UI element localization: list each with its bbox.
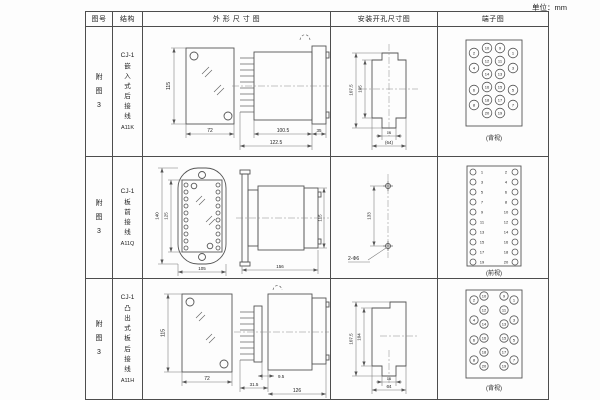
structure-row1: CJ-1 嵌入式后接线 A11K <box>121 52 135 131</box>
terminal-grid: 2 4 6 8 10 12 14 16 18 20 9 11 13 15 17 … <box>469 43 518 118</box>
fig-no-row2: 附图3 <box>96 197 103 239</box>
svg-text:14: 14 <box>485 71 490 76</box>
svg-text:12: 12 <box>504 219 509 224</box>
svg-text:9: 9 <box>481 209 484 214</box>
dim-107-5: 107.5 <box>348 333 353 345</box>
dim-16: 16 <box>386 130 391 135</box>
svg-text:7: 7 <box>513 358 516 363</box>
svg-text:14: 14 <box>504 229 509 234</box>
dim-140: 140 <box>154 211 159 219</box>
structure-desc-row3: 凸出式板后接线 <box>124 304 131 374</box>
fig-no-cell-row3: 附图3 <box>86 279 113 399</box>
mounting-drawing-a11q: 133 2-Φ6 <box>332 158 437 278</box>
header-mounting: 安装开孔尺寸图 <box>331 12 438 27</box>
hole-callout: 2-Φ6 <box>348 256 359 262</box>
outline-drawing-a11k: 115 72 100.5 35 122.5 <box>144 28 330 156</box>
svg-text:19: 19 <box>480 259 485 264</box>
header-terminal: 端子图 <box>438 12 548 27</box>
svg-text:18: 18 <box>485 97 490 102</box>
fig-no-row3: 附图3 <box>96 318 103 360</box>
svg-text:7: 7 <box>512 102 515 107</box>
svg-text:6: 6 <box>473 338 476 343</box>
structure-row2: CJ-1 板前接线 A11Q <box>121 188 135 247</box>
svg-text:16: 16 <box>485 84 490 89</box>
fig-no-cell-row2: 附图3 <box>86 157 113 279</box>
svg-text:1: 1 <box>481 169 484 174</box>
svg-text:19: 19 <box>502 364 507 369</box>
svg-text:5: 5 <box>481 189 484 194</box>
front-view: 115 72 <box>160 294 232 386</box>
svg-text:3: 3 <box>513 318 516 323</box>
terminal-grid: 2 4 6 8 10 12 14 16 18 20 9 11 13 15 17 … <box>470 292 518 370</box>
view-label-row1: (背视) <box>486 134 502 142</box>
structure-cell-row2: CJ-1 板前接线 A11Q <box>113 157 143 279</box>
svg-text:20: 20 <box>485 110 490 115</box>
model-row2: CJ-1 <box>121 188 135 195</box>
dim-104: 104 <box>356 333 361 341</box>
structure-cell-row1: CJ-1 嵌入式后接线 A11K <box>113 27 143 157</box>
svg-text:8: 8 <box>473 358 476 363</box>
structure-desc-row1: 嵌入式后接线 <box>124 62 131 122</box>
structure-cell-row3: CJ-1 凸出式板后接线 A11H <box>113 279 143 399</box>
svg-text:2: 2 <box>505 169 508 174</box>
svg-text:3: 3 <box>512 65 515 70</box>
dim-115: 115 <box>166 81 172 89</box>
svg-text:7: 7 <box>481 199 484 204</box>
svg-text:17: 17 <box>480 249 485 254</box>
svg-text:4: 4 <box>473 318 476 323</box>
svg-text:5: 5 <box>512 87 515 92</box>
svg-text:18: 18 <box>482 350 487 355</box>
outline-drawing-a11q: 140 125 105 <box>144 158 330 278</box>
header-fig-no: 图号 <box>86 12 113 27</box>
fig-no-cell-row1: 附图3 <box>86 27 113 157</box>
header-structure: 结构 <box>113 12 143 27</box>
svg-text:10: 10 <box>485 45 490 50</box>
terminal-diagram-a11h: 2 4 6 8 10 12 14 16 18 20 9 11 13 15 17 … <box>439 280 547 398</box>
mounting-drawing-a11h: 107.5 104 16 64 <box>332 280 437 398</box>
svg-text:9: 9 <box>503 294 506 299</box>
svg-text:12: 12 <box>485 58 490 63</box>
terminal-diagram-a11q: 12 34 56 78 910 1112 1314 1516 1718 1920… <box>439 158 547 278</box>
side-view: 100.5 35 122.5 <box>232 34 329 149</box>
dim-133: 133 <box>366 211 371 219</box>
svg-text:13: 13 <box>502 322 507 327</box>
dim-72: 72 <box>207 128 213 134</box>
svg-text:16: 16 <box>504 239 509 244</box>
dim-31-5: 31.5 <box>249 382 258 387</box>
svg-text:11: 11 <box>498 58 503 63</box>
svg-text:15: 15 <box>498 84 503 89</box>
svg-text:17: 17 <box>502 350 507 355</box>
svg-text:14: 14 <box>482 322 487 327</box>
dim-100-5: 100.5 <box>276 128 289 134</box>
terminal-grid: 12 34 56 78 910 1112 1314 1516 1718 1920 <box>470 169 518 265</box>
dim-122-5: 122.5 <box>269 140 282 146</box>
front-view: 115 72 <box>166 48 234 138</box>
svg-text:9: 9 <box>499 45 502 50</box>
svg-text:11: 11 <box>502 308 507 313</box>
svg-text:15: 15 <box>502 336 507 341</box>
dim-35: 35 <box>316 128 322 133</box>
svg-text:3: 3 <box>481 179 484 184</box>
structure-desc-row2: 板前接线 <box>124 198 131 238</box>
svg-text:1: 1 <box>513 298 516 303</box>
svg-text:20: 20 <box>504 259 509 264</box>
terminal-cell-row3: 2 4 6 8 10 12 14 16 18 20 9 11 13 15 17 … <box>438 279 548 399</box>
dim-64: 64 <box>386 384 392 389</box>
dim-156: 156 <box>276 264 284 269</box>
dimension-table: 图号 结构 外 形 尺 寸 图 安装开孔尺寸图 端子图 附图3 CJ-1 嵌入式… <box>85 11 549 400</box>
dim-9-5: 9.5 <box>278 374 285 379</box>
mounting-drawing-a11k: 107.5 105 16 (64) <box>332 28 437 156</box>
mounting-cell-row2: 133 2-Φ6 <box>331 157 438 279</box>
mounting-cell-row1: 107.5 105 16 (64) <box>331 27 438 157</box>
mounting-cell-row3: 107.5 104 16 64 <box>331 279 438 399</box>
dim-126: 126 <box>292 388 301 394</box>
structure-code-row3: A11H <box>121 378 134 384</box>
header-outline: 外 形 尺 寸 图 <box>143 12 331 27</box>
structure-code-row1: A11K <box>121 125 134 131</box>
svg-text:5: 5 <box>513 338 516 343</box>
svg-text:2: 2 <box>473 50 476 55</box>
dim-115: 115 <box>160 329 166 337</box>
view-label-row3: (背视) <box>486 384 502 392</box>
model-row3: CJ-1 <box>121 294 135 301</box>
side-view: 156 115 <box>236 170 329 274</box>
svg-text:13: 13 <box>480 229 485 234</box>
structure-code-row2: A11Q <box>121 241 135 247</box>
catalog-page: 单位：mm 图号 结构 外 形 尺 寸 图 安装开孔尺寸图 端子图 附图3 CJ… <box>0 0 600 400</box>
svg-text:19: 19 <box>498 110 503 115</box>
dim-105: 105 <box>357 84 362 92</box>
svg-text:6: 6 <box>473 87 476 92</box>
structure-row3: CJ-1 凸出式板后接线 A11H <box>121 294 135 383</box>
outline-cell-row2: 140 125 105 <box>143 157 331 279</box>
front-view: 140 125 105 <box>154 168 226 276</box>
svg-text:11: 11 <box>480 219 485 224</box>
dim-16: 16 <box>386 376 391 381</box>
outline-cell-row1: 115 72 100.5 35 122.5 <box>143 27 331 157</box>
svg-text:12: 12 <box>482 308 487 313</box>
svg-text:8: 8 <box>473 102 476 107</box>
svg-text:15: 15 <box>480 239 485 244</box>
svg-text:20: 20 <box>482 364 487 369</box>
outline-cell-row3: 115 72 9.5 31.5 <box>143 279 331 399</box>
svg-text:2: 2 <box>473 298 476 303</box>
model-row1: CJ-1 <box>121 52 135 59</box>
svg-text:17: 17 <box>498 97 503 102</box>
svg-text:13: 13 <box>498 71 503 76</box>
terminal-cell-row2: 12 34 56 78 910 1112 1314 1516 1718 1920… <box>438 157 548 279</box>
fig-no-row1: 附图3 <box>96 71 103 113</box>
dim-107-5: 107.5 <box>348 83 353 95</box>
dim-72: 72 <box>204 376 210 382</box>
svg-text:16: 16 <box>482 336 487 341</box>
terminal-diagram-a11k: 2 4 6 8 10 12 14 16 18 20 9 11 13 15 17 … <box>439 28 547 156</box>
side-view: 9.5 31.5 126 <box>234 286 329 399</box>
dim-115-side: 115 <box>317 213 322 221</box>
dim-105-w: 105 <box>198 266 206 271</box>
view-label-row2: (前视) <box>486 269 502 277</box>
outline-drawing-a11h: 115 72 9.5 31.5 <box>144 280 330 398</box>
dim-64: (64) <box>384 140 393 145</box>
svg-text:10: 10 <box>482 294 487 299</box>
svg-text:4: 4 <box>505 179 508 184</box>
terminal-cell-row1: 2 4 6 8 10 12 14 16 18 20 9 11 13 15 17 … <box>438 27 548 157</box>
svg-text:1: 1 <box>512 50 515 55</box>
svg-text:6: 6 <box>505 189 508 194</box>
svg-text:8: 8 <box>505 199 508 204</box>
svg-text:4: 4 <box>473 65 476 70</box>
svg-text:18: 18 <box>504 249 509 254</box>
svg-text:10: 10 <box>504 209 509 214</box>
dim-125: 125 <box>163 211 168 219</box>
